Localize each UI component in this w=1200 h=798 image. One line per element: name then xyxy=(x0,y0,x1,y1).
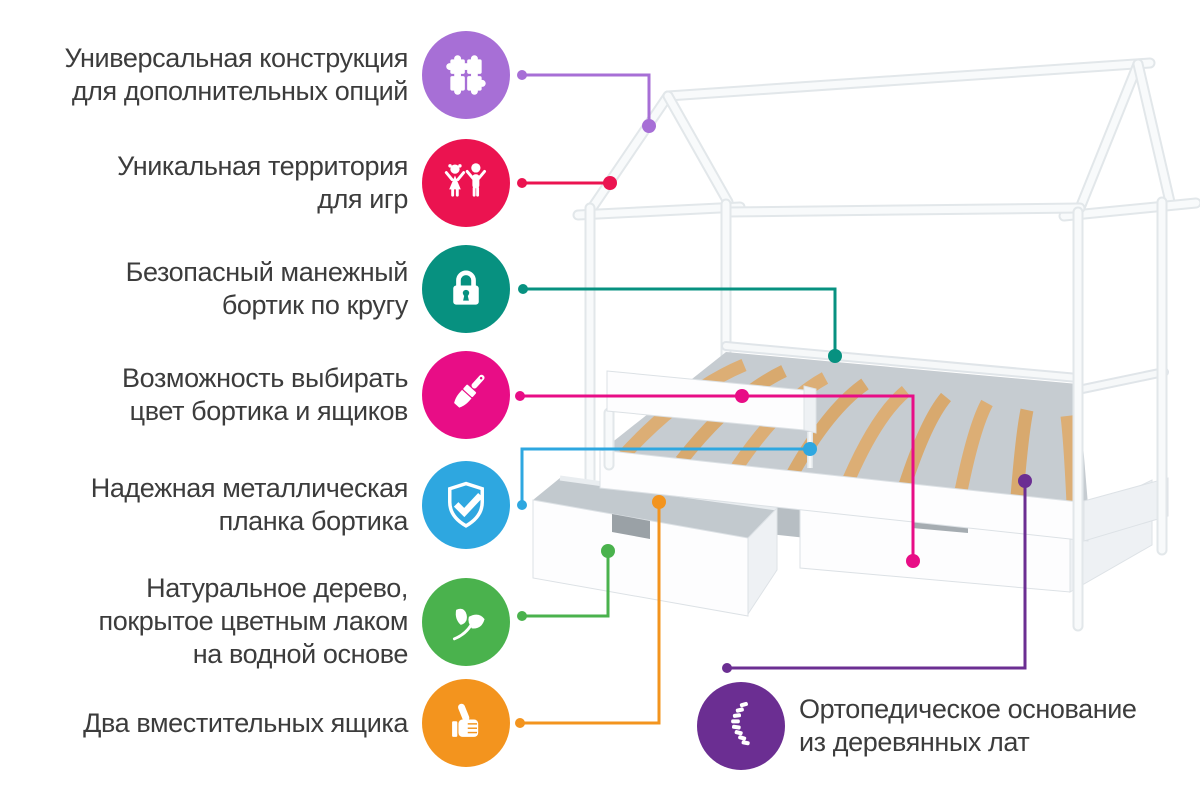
label-line: для дополнительных опций xyxy=(18,75,408,108)
puzzle-icon xyxy=(422,31,510,119)
label-line: бортик по кругу xyxy=(18,289,408,322)
feature-label: Безопасный манежный бортик по кругу xyxy=(18,256,408,322)
thumbs-up-icon xyxy=(422,679,510,767)
feature-metal-rail-plank: Надежная металлическая планка бортика xyxy=(18,461,510,549)
padlock-icon xyxy=(422,245,510,333)
label-line: цвет бортика и ящиков xyxy=(18,395,408,428)
feature-label: Надежная металлическая планка бортика xyxy=(18,472,408,538)
feature-two-drawers: Два вместительных ящика xyxy=(18,679,510,767)
children-icon xyxy=(422,139,510,227)
feature-label: Натуральное дерево, покрытое цветным лак… xyxy=(18,572,408,671)
label-line: Натуральное дерево, xyxy=(18,572,408,605)
feature-safe-playpen-rail: Безопасный манежный бортик по кругу xyxy=(18,245,510,333)
label-line: для игр xyxy=(18,183,408,216)
label-line: Универсальная конструкция xyxy=(18,42,408,75)
label-line: Уникальная территория xyxy=(18,150,408,183)
label-line: на водной основе xyxy=(18,638,408,671)
feature-orthopedic-base: Ортопедическое основание из деревянных л… xyxy=(697,682,1179,770)
feature-play-territory: Уникальная территория для игр xyxy=(18,139,510,227)
label-line: Возможность выбирать xyxy=(18,362,408,395)
shield-check-icon xyxy=(422,461,510,549)
paintbrush-icon xyxy=(422,351,510,439)
label-line: покрытое цветным лаком xyxy=(18,605,408,638)
label-line: из деревянных лат xyxy=(799,726,1179,759)
label-line: планка бортика xyxy=(18,505,408,538)
infographic-canvas: Универсальная конструкция для дополнител… xyxy=(0,0,1200,798)
feature-label: Уникальная территория для игр xyxy=(18,150,408,216)
feature-label: Возможность выбирать цвет бортика и ящик… xyxy=(18,362,408,428)
leaf-icon xyxy=(422,578,510,666)
label-line: Ортопедическое основание xyxy=(799,693,1179,726)
feature-label: Ортопедическое основание из деревянных л… xyxy=(799,693,1179,759)
feature-label: Универсальная конструкция для дополнител… xyxy=(18,42,408,108)
feature-color-choice: Возможность выбирать цвет бортика и ящик… xyxy=(18,351,510,439)
feature-universal-construction: Универсальная конструкция для дополнител… xyxy=(18,31,510,119)
label-line: Надежная металлическая xyxy=(18,472,408,505)
feature-label: Два вместительных ящика xyxy=(18,707,408,740)
label-line: Безопасный манежный xyxy=(18,256,408,289)
label-line: Два вместительных ящика xyxy=(18,707,408,740)
feature-natural-wood: Натуральное дерево, покрытое цветным лак… xyxy=(18,572,510,671)
spine-icon xyxy=(697,682,785,770)
